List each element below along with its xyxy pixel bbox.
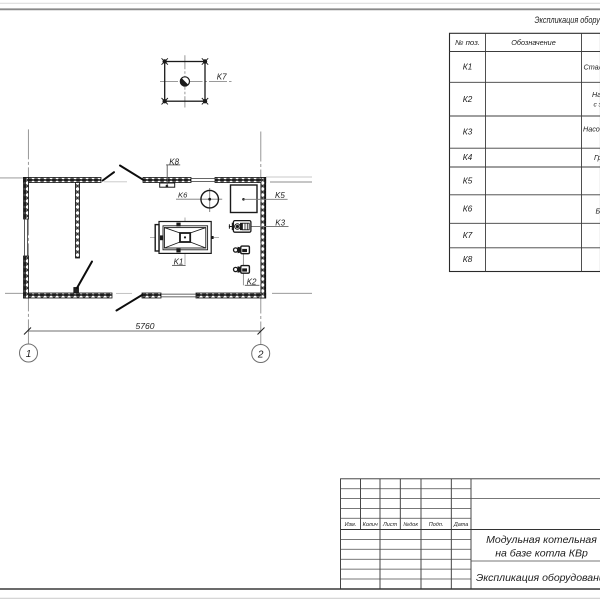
svg-text:K2: K2 xyxy=(247,278,257,287)
svg-text:№док: №док xyxy=(403,522,418,528)
svg-text:Обозначение: Обозначение xyxy=(511,38,556,47)
svg-text:с электродвигателем: с электродвигателем xyxy=(594,101,600,109)
svg-text:K6: K6 xyxy=(178,190,188,199)
svg-text:Стальной котел КВр-0,93: Стальной котел КВр-0,93 xyxy=(584,63,600,72)
svg-text:Насос сетевой WILO: Насос сетевой WILO xyxy=(592,90,600,99)
svg-text:на базе котла КВр: на базе котла КВр xyxy=(495,547,588,559)
svg-text:K7: K7 xyxy=(217,72,227,81)
svg-text:Экспликация оборудования: Экспликация оборудования xyxy=(535,15,600,25)
svg-text:2: 2 xyxy=(257,349,264,360)
svg-text:К7: К7 xyxy=(463,230,473,240)
svg-text:К8: К8 xyxy=(463,254,473,264)
svg-text:Подп.: Подп. xyxy=(429,522,444,528)
svg-text:Насос подпиточный: Насос подпиточный xyxy=(583,125,600,134)
svg-text:К6: К6 xyxy=(463,204,473,214)
svg-text:K1: K1 xyxy=(174,257,184,266)
svg-text:Изм.: Изм. xyxy=(345,522,357,528)
svg-text:К4: К4 xyxy=(463,152,473,162)
svg-text:Лист: Лист xyxy=(382,522,398,528)
svg-text:Модульная котельная: Модульная котельная xyxy=(486,534,597,546)
svg-text:Колич: Колич xyxy=(363,522,378,528)
svg-text:Экспликация оборудования: Экспликация оборудования xyxy=(476,572,600,584)
svg-text:К2: К2 xyxy=(463,94,473,104)
svg-text:K5: K5 xyxy=(275,191,285,200)
svg-text:Бак расширительный: Бак расширительный xyxy=(596,207,600,216)
svg-text:1: 1 xyxy=(26,349,32,360)
svg-text:K3: K3 xyxy=(275,218,285,227)
svg-text:К3: К3 xyxy=(463,127,473,137)
svg-text:Дата: Дата xyxy=(453,522,469,528)
svg-text:№ поз.: № поз. xyxy=(455,38,480,47)
svg-text:5760: 5760 xyxy=(136,321,155,331)
svg-text:К5: К5 xyxy=(463,176,473,186)
svg-text:К1: К1 xyxy=(463,62,473,72)
svg-text:Грязевик абонентский: Грязевик абонентский xyxy=(594,153,600,162)
svg-text:K8: K8 xyxy=(169,157,179,166)
